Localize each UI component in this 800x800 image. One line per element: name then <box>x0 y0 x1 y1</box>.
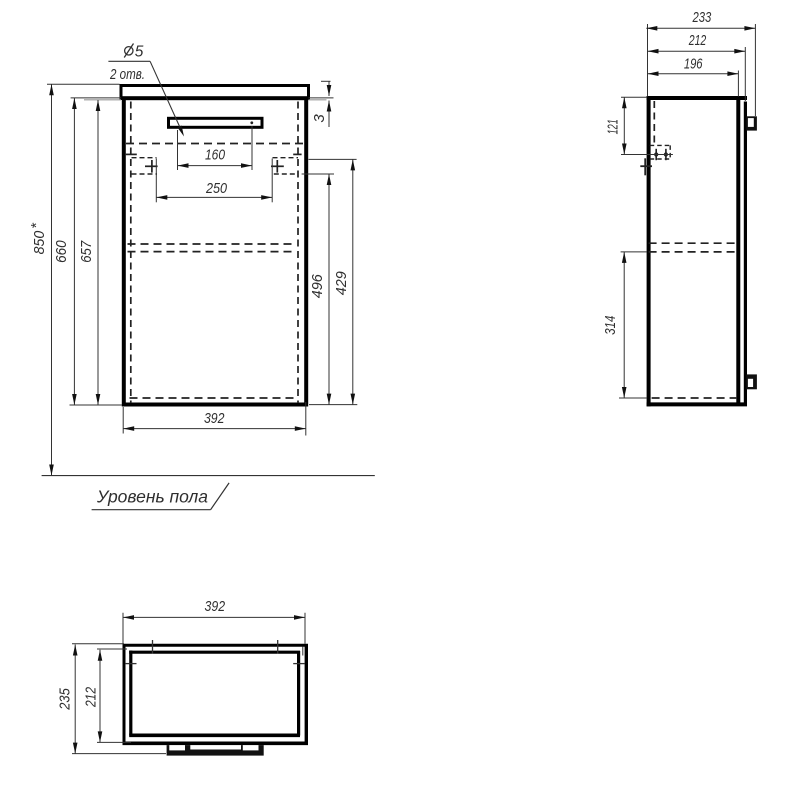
svg-text:196: 196 <box>684 56 703 73</box>
svg-text:160: 160 <box>205 146 226 163</box>
svg-text:657: 657 <box>78 240 95 263</box>
svg-text:496: 496 <box>309 274 326 299</box>
svg-text:314: 314 <box>602 316 619 335</box>
svg-text:392: 392 <box>205 598 226 615</box>
svg-text:5: 5 <box>135 44 144 61</box>
svg-text:2 отв.: 2 отв. <box>109 66 145 83</box>
svg-text:660: 660 <box>53 240 70 263</box>
svg-text:850: 850 <box>31 230 48 254</box>
svg-text:3: 3 <box>311 114 328 123</box>
svg-text:121: 121 <box>604 119 621 134</box>
svg-text:*: * <box>28 222 45 229</box>
svg-text:233: 233 <box>692 9 712 26</box>
svg-text:235: 235 <box>57 688 74 711</box>
svg-text:212: 212 <box>83 686 100 707</box>
svg-text:392: 392 <box>204 410 225 427</box>
svg-text:429: 429 <box>333 271 350 296</box>
svg-text:250: 250 <box>205 180 227 197</box>
svg-text:Уровень пола: Уровень пола <box>96 487 208 507</box>
svg-text:212: 212 <box>688 32 707 49</box>
